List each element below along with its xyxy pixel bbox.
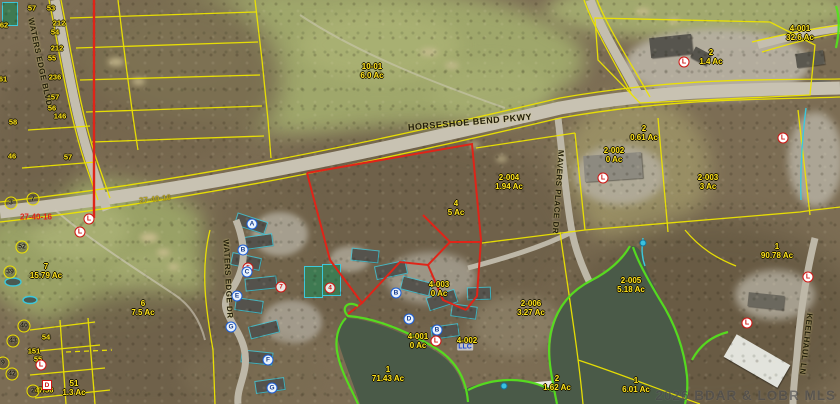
parcel-label-line: 2-002 [604,146,624,155]
lot-number: 212 [53,19,66,28]
parcel-label-line: 6.0 Ac [360,71,383,80]
lot-circle-marker[interactable]: 7 [27,193,40,206]
parcel-label-line: 4 [448,199,465,208]
parcel-label: 2-0063.27 Ac [517,299,545,317]
section-township-range-label: 27-40-16 [139,193,172,205]
parcel-label-line: 2-004 [495,173,523,182]
section-township-range-label: 27-40-16 [20,213,52,222]
llc-tag: LLC [457,344,473,351]
listing-pin[interactable]: L [679,57,690,68]
building-letter-marker[interactable]: C [242,267,253,278]
parcel-label: 10-016.0 Ac [360,62,383,80]
parcel-label-line: 0 Ac [429,289,449,298]
building-letter-marker[interactable]: B [238,245,249,256]
parcel-label-line: 6 [131,299,154,308]
parcel-label: 715.79 Ac [30,262,62,280]
listing-box-marker[interactable]: D [42,380,52,390]
building-letter-marker[interactable]: G [226,322,237,333]
listing-pin[interactable]: L [75,227,86,238]
parcel-label: 4-00132.6 Ac [786,24,814,42]
building-letter-marker[interactable]: F [263,355,274,366]
street-label: HORSESHOE BEND PKWY [408,112,533,133]
street-label: WATERS EDGE DR [221,239,234,319]
building-letter-marker[interactable]: A [247,219,258,230]
parcel-label-line: 4-003 [429,280,449,289]
parcel-label: 45 Ac [448,199,465,217]
street-label: MAVERS PLACE DR [551,150,566,235]
map-annotation-layer: 10-016.0 Ac21.4 Ac4-00132.6 Ac20.61 Ac2-… [0,0,840,404]
lot-number: 58 [9,118,17,127]
parcel-label-line: 71.43 Ac [372,374,404,383]
parcel-label-line: 32.6 Ac [786,33,814,42]
parcel-label-line: 7 [30,262,62,271]
parcel-label-line: 51 [62,379,85,388]
lot-circle-marker[interactable]: 40 [18,320,31,333]
parcel-label-line: 4-001 [408,332,428,341]
parcel-label-line: 1 [761,242,793,251]
parcel-label-line: 2 [699,48,722,57]
parcel-label-line: 90.78 Ac [761,251,793,260]
mls-watermark: 2026 BDAR & LOBR MLS [655,388,836,403]
parcel-label: 21.62 Ac [543,374,571,392]
parcel-label: 4-0010 Ac [408,332,428,350]
parcel-label: 4-0030 Ac [429,280,449,298]
lot-number: 53 [47,4,55,13]
parcel-label-line: 6.01 Ac [622,385,650,394]
lot-number: 54 [42,333,50,342]
parcel-label-line: 2-006 [517,299,545,308]
lot-number: 236 [49,73,62,82]
red-number-marker[interactable]: 4 [325,283,336,294]
parcel-label: 21.4 Ac [699,48,722,66]
listing-pin[interactable]: L [84,214,95,225]
street-label: KEELHAUL LN [798,313,814,375]
parcel-label-line: 1.3 Ac [62,388,85,397]
parcel-label-line: 2 [630,124,658,133]
red-number-marker[interactable]: 7 [276,282,287,293]
lot-number: 212 [51,44,64,53]
parcel-label: 67.5 Ac [131,299,154,317]
parcel-label-line: 1 [622,376,650,385]
parcel-label-line: 0.61 Ac [630,133,658,142]
parcel-label-line: 1.94 Ac [495,182,523,191]
listing-pin[interactable]: L [742,318,753,329]
lot-circle-marker[interactable]: 2 [27,385,40,398]
parcel-label-line: 7.5 Ac [131,308,154,317]
water-feature-marker [501,383,508,390]
lot-number: 57 [28,4,36,13]
building-letter-marker[interactable]: G [267,383,278,394]
parcel-label-line: 1.62 Ac [543,383,571,392]
parcel-label: 2-0020 Ac [604,146,624,164]
listing-pin[interactable]: L [36,360,47,371]
parcel-label-line: 4-001 [786,24,814,33]
parcel-label-line: 5 Ac [448,208,465,217]
lot-circle-marker[interactable]: 42 [6,368,19,381]
lot-circle-marker[interactable]: 3 [5,197,18,210]
parcel-label-line: 2-005 [617,276,645,285]
parcel-label: 20.61 Ac [630,124,658,142]
listing-pin[interactable]: L [598,173,609,184]
building-letter-marker[interactable]: E [232,291,243,302]
parcel-label-line: 10-01 [360,62,383,71]
water-feature-marker [640,240,647,247]
parcel-label: 2-0033 Ac [698,173,718,191]
parcel-map-view[interactable]: 10-016.0 Ac21.4 Ac4-00132.6 Ac20.61 Ac2-… [0,0,840,404]
lot-number: 54 [51,28,59,37]
lot-number: 61 [0,75,7,84]
parcel-label-line: 0 Ac [604,155,624,164]
building-letter-marker[interactable]: B [391,288,402,299]
building-letter-marker[interactable]: B [432,325,443,336]
parcel-label: 2-0055.18 Ac [617,276,645,294]
parcel-label: 171.43 Ac [372,365,404,383]
building-letter-marker[interactable]: D [404,314,415,325]
listing-pin[interactable]: L [431,336,442,347]
lot-number: 55 [48,54,56,63]
parcel-label-line: 2 [543,374,571,383]
lot-number: 57 [64,153,72,162]
parcel-label: 16.01 Ac [622,376,650,394]
lot-number: 62 [0,21,8,30]
lot-circle-marker[interactable]: 39 [4,266,17,279]
parcel-label-line: 0 Ac [408,341,428,350]
lot-number: 46 [8,152,16,161]
parcel-label-line: 2-003 [698,173,718,182]
parcel-label: 2-0041.94 Ac [495,173,523,191]
parcel-label-line: 1.4 Ac [699,57,722,66]
lot-circle-marker[interactable]: 52 [16,241,29,254]
listing-pin[interactable]: L [778,133,789,144]
parcel-label: 511.3 Ac [62,379,85,397]
parcel-label-line: 3.27 Ac [517,308,545,317]
parcel-label-line: 1 [372,365,404,374]
lot-number: 146 [54,112,67,121]
parcel-label: 190.78 Ac [761,242,793,260]
parcel-label-line: 3 Ac [698,182,718,191]
lot-circle-marker[interactable]: 43 [7,335,20,348]
parcel-label-line: 15.79 Ac [30,271,62,280]
parcel-label-line: 5.18 Ac [617,285,645,294]
listing-pin[interactable]: L [803,272,814,283]
